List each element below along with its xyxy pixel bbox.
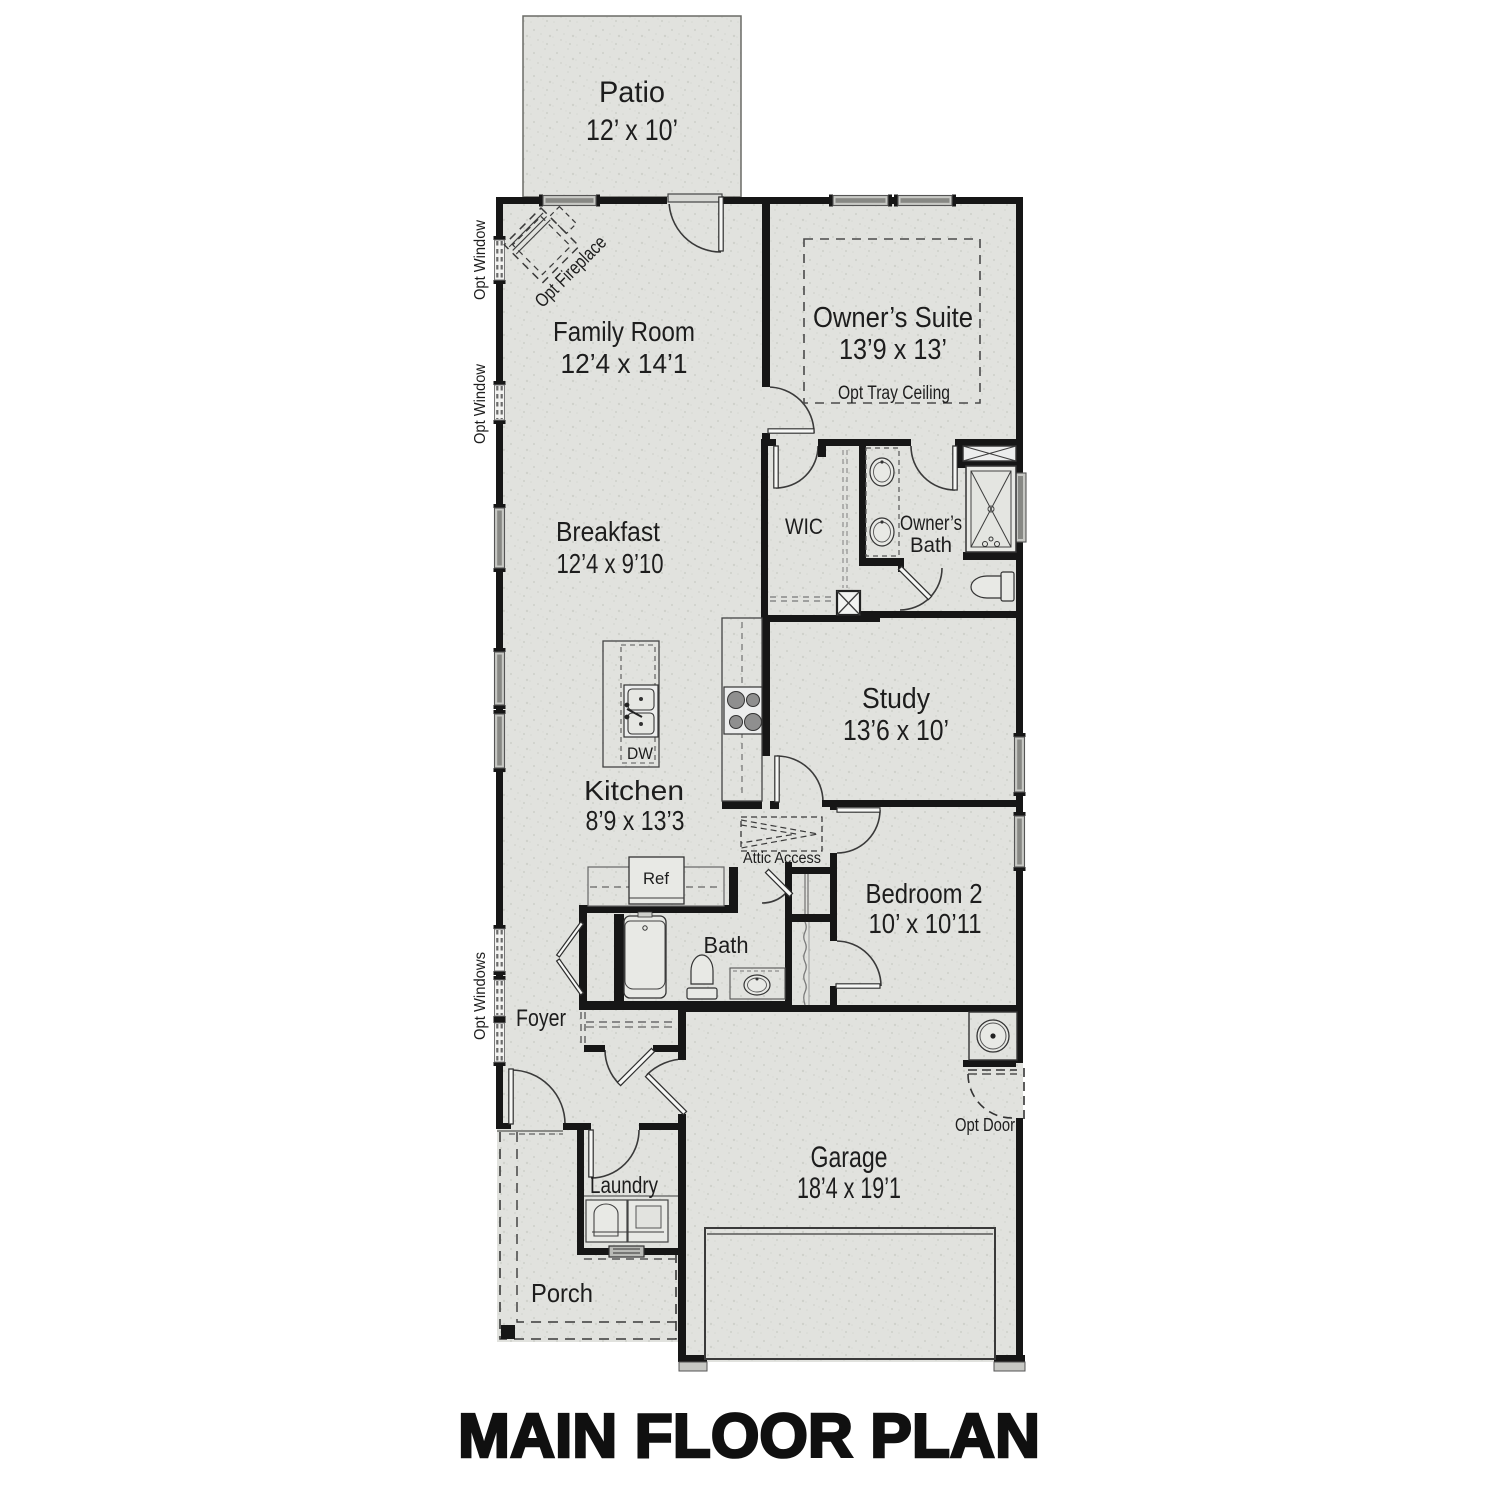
svg-text:18’4 x 19’1: 18’4 x 19’1 [797,1172,901,1205]
svg-text:Owner’s Suite: Owner’s Suite [813,302,973,334]
svg-text:12’4 x 14’1: 12’4 x 14’1 [561,348,688,379]
svg-text:Opt Window: Opt Window [472,363,489,444]
svg-text:Kitchen: Kitchen [584,775,684,806]
svg-text:Ref: Ref [643,869,669,888]
svg-text:12’ x 10’: 12’ x 10’ [586,114,678,147]
svg-text:12’4 x 9’10: 12’4 x 9’10 [557,548,664,579]
svg-text:Porch: Porch [531,1278,593,1308]
svg-text:Bath: Bath [704,932,749,958]
svg-text:Family Room: Family Room [553,316,695,347]
svg-text:Owner’s: Owner’s [900,512,962,535]
svg-text:Foyer: Foyer [516,1005,566,1032]
svg-text:Bath: Bath [910,534,952,557]
svg-text:MAIN FLOOR PLAN: MAIN FLOOR PLAN [458,1402,1040,1471]
svg-text:10’ x 10’11: 10’ x 10’11 [869,908,982,939]
svg-text:Garage: Garage [811,1141,888,1174]
svg-text:Breakfast: Breakfast [556,516,660,547]
svg-text:Opt Tray Ceiling: Opt Tray Ceiling [838,383,950,404]
svg-text:13’9 x 13’: 13’9 x 13’ [839,334,947,366]
svg-text:WIC: WIC [785,514,823,539]
svg-text:8’9 x 13’3: 8’9 x 13’3 [586,805,685,836]
svg-text:Study: Study [862,683,930,715]
svg-text:Laundry: Laundry [590,1172,658,1198]
svg-text:13’6 x 10’: 13’6 x 10’ [843,715,949,747]
svg-text:Opt Window: Opt Window [472,219,489,300]
svg-text:Bedroom 2: Bedroom 2 [866,878,983,909]
svg-text:Attic Access: Attic Access [743,850,821,867]
svg-text:Patio: Patio [599,76,665,109]
svg-text:DW: DW [627,744,653,763]
svg-text:Opt Door: Opt Door [955,1115,1015,1135]
svg-text:Opt Windows: Opt Windows [472,952,489,1040]
